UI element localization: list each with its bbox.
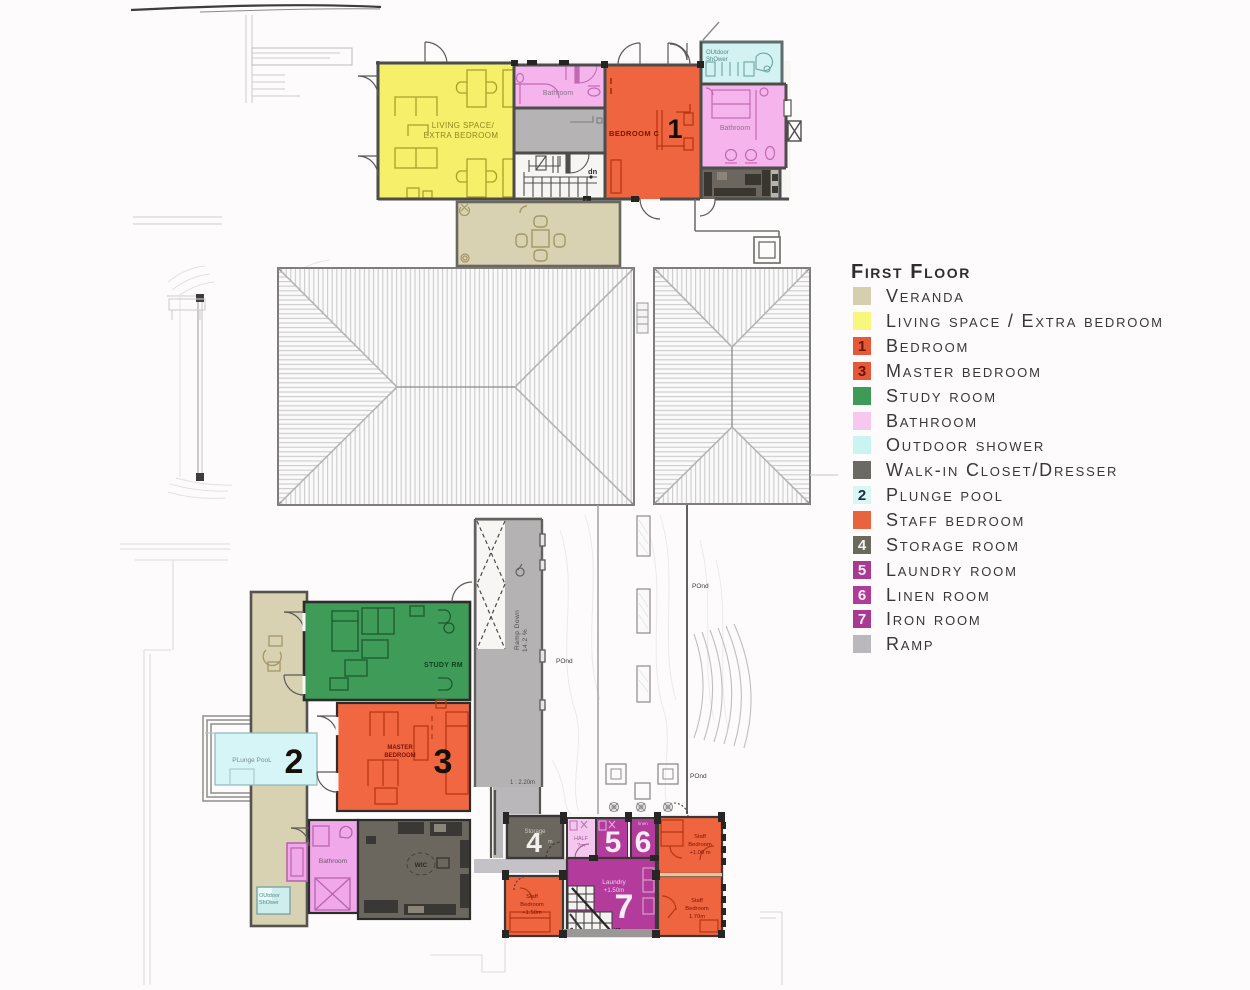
svg-text:Laundry room: Laundry room — [886, 560, 1018, 580]
svg-text:Bedroom: Bedroom — [688, 842, 712, 848]
svg-text:4: 4 — [526, 827, 542, 858]
svg-text:Bedroom: Bedroom — [520, 902, 544, 908]
svg-text:WIC: WIC — [415, 862, 428, 869]
svg-text:Iron room: Iron room — [886, 609, 982, 629]
svg-text:PLunge PooL: PLunge PooL — [232, 757, 272, 764]
svg-text:Bathroom: Bathroom — [886, 411, 978, 431]
svg-text:Study room: Study room — [886, 386, 997, 406]
svg-text:+1.00 m: +1.00 m — [689, 850, 710, 856]
svg-text:1.70m: 1.70m — [689, 914, 705, 920]
svg-text:7: 7 — [615, 888, 634, 926]
svg-text:LIVING SPACE/: LIVING SPACE/ — [432, 121, 495, 130]
svg-text:OUtdoor: OUtdoor — [706, 50, 729, 56]
svg-text:Bathroom: Bathroom — [543, 90, 574, 97]
svg-text:2: 2 — [285, 743, 304, 781]
svg-text:HALF: HALF — [574, 836, 589, 842]
svg-text:1: 1 — [667, 114, 682, 144]
svg-text:POnd: POnd — [690, 773, 707, 780]
svg-text:OUtdoor: OUtdoor — [259, 893, 280, 899]
svg-text:Linen room: Linen room — [886, 585, 991, 605]
svg-text:Veranda: Veranda — [886, 286, 965, 306]
svg-text:MASTER: MASTER — [387, 745, 413, 751]
svg-text:4: 4 — [858, 537, 867, 554]
svg-text:6: 6 — [858, 587, 866, 604]
svg-text:First Floor: First Floor — [851, 261, 971, 283]
svg-text:Bedroom: Bedroom — [685, 906, 709, 912]
svg-text:+1.50m: +1.50m — [522, 910, 542, 916]
svg-text:1 : 2.20m: 1 : 2.20m — [510, 780, 535, 786]
svg-text:Staff: Staff — [691, 898, 703, 904]
svg-text:Ramp: Ramp — [886, 634, 934, 654]
svg-text:5: 5 — [605, 826, 622, 859]
svg-text:EXTRA BEDROOM: EXTRA BEDROOM — [424, 131, 499, 140]
svg-text:BEDROOM C: BEDROOM C — [609, 129, 659, 138]
svg-text:Ramp Down: Ramp Down — [514, 610, 521, 650]
svg-text:ShOwer: ShOwer — [706, 57, 728, 63]
svg-text:5: 5 — [858, 562, 866, 579]
svg-text:Outdoor shower: Outdoor shower — [886, 435, 1045, 455]
svg-text:Laundry: Laundry — [602, 879, 626, 886]
svg-text:6: 6 — [635, 826, 652, 859]
svg-text:STUDY RM: STUDY RM — [424, 662, 463, 669]
svg-text:Plunge pool: Plunge pool — [886, 485, 1004, 505]
svg-text:Living space / Extra bedroom: Living space / Extra bedroom — [886, 311, 1164, 331]
svg-text:14.2 %: 14.2 % — [522, 629, 529, 652]
svg-text:Bathroom: Bathroom — [720, 125, 751, 132]
svg-text:dn: dn — [588, 167, 598, 176]
svg-text:3: 3 — [858, 363, 866, 380]
svg-text:Staff: Staff — [526, 894, 538, 900]
svg-text:BEDROOM: BEDROOM — [384, 753, 415, 759]
svg-text:7: 7 — [858, 611, 866, 628]
svg-text:POnd: POnd — [556, 658, 573, 665]
svg-text:Staff bedroom: Staff bedroom — [886, 510, 1025, 530]
svg-text:3: 3 — [434, 743, 453, 781]
svg-text:Storage room: Storage room — [886, 535, 1020, 555]
svg-text:POnd: POnd — [692, 583, 709, 590]
svg-text:ShOwer: ShOwer — [259, 900, 279, 906]
svg-text:?m: ?m — [577, 843, 585, 849]
svg-text:Master bedroom: Master bedroom — [886, 361, 1042, 381]
svg-text:Staff: Staff — [694, 834, 706, 840]
svg-text:Walk-in Closet/Dresser: Walk-in Closet/Dresser — [886, 460, 1118, 480]
svg-text:2: 2 — [858, 487, 866, 504]
svg-text:m: m — [548, 839, 553, 845]
svg-text:Bathroom: Bathroom — [319, 858, 347, 865]
svg-text:Bedroom: Bedroom — [886, 336, 969, 356]
svg-text:1: 1 — [858, 338, 866, 355]
